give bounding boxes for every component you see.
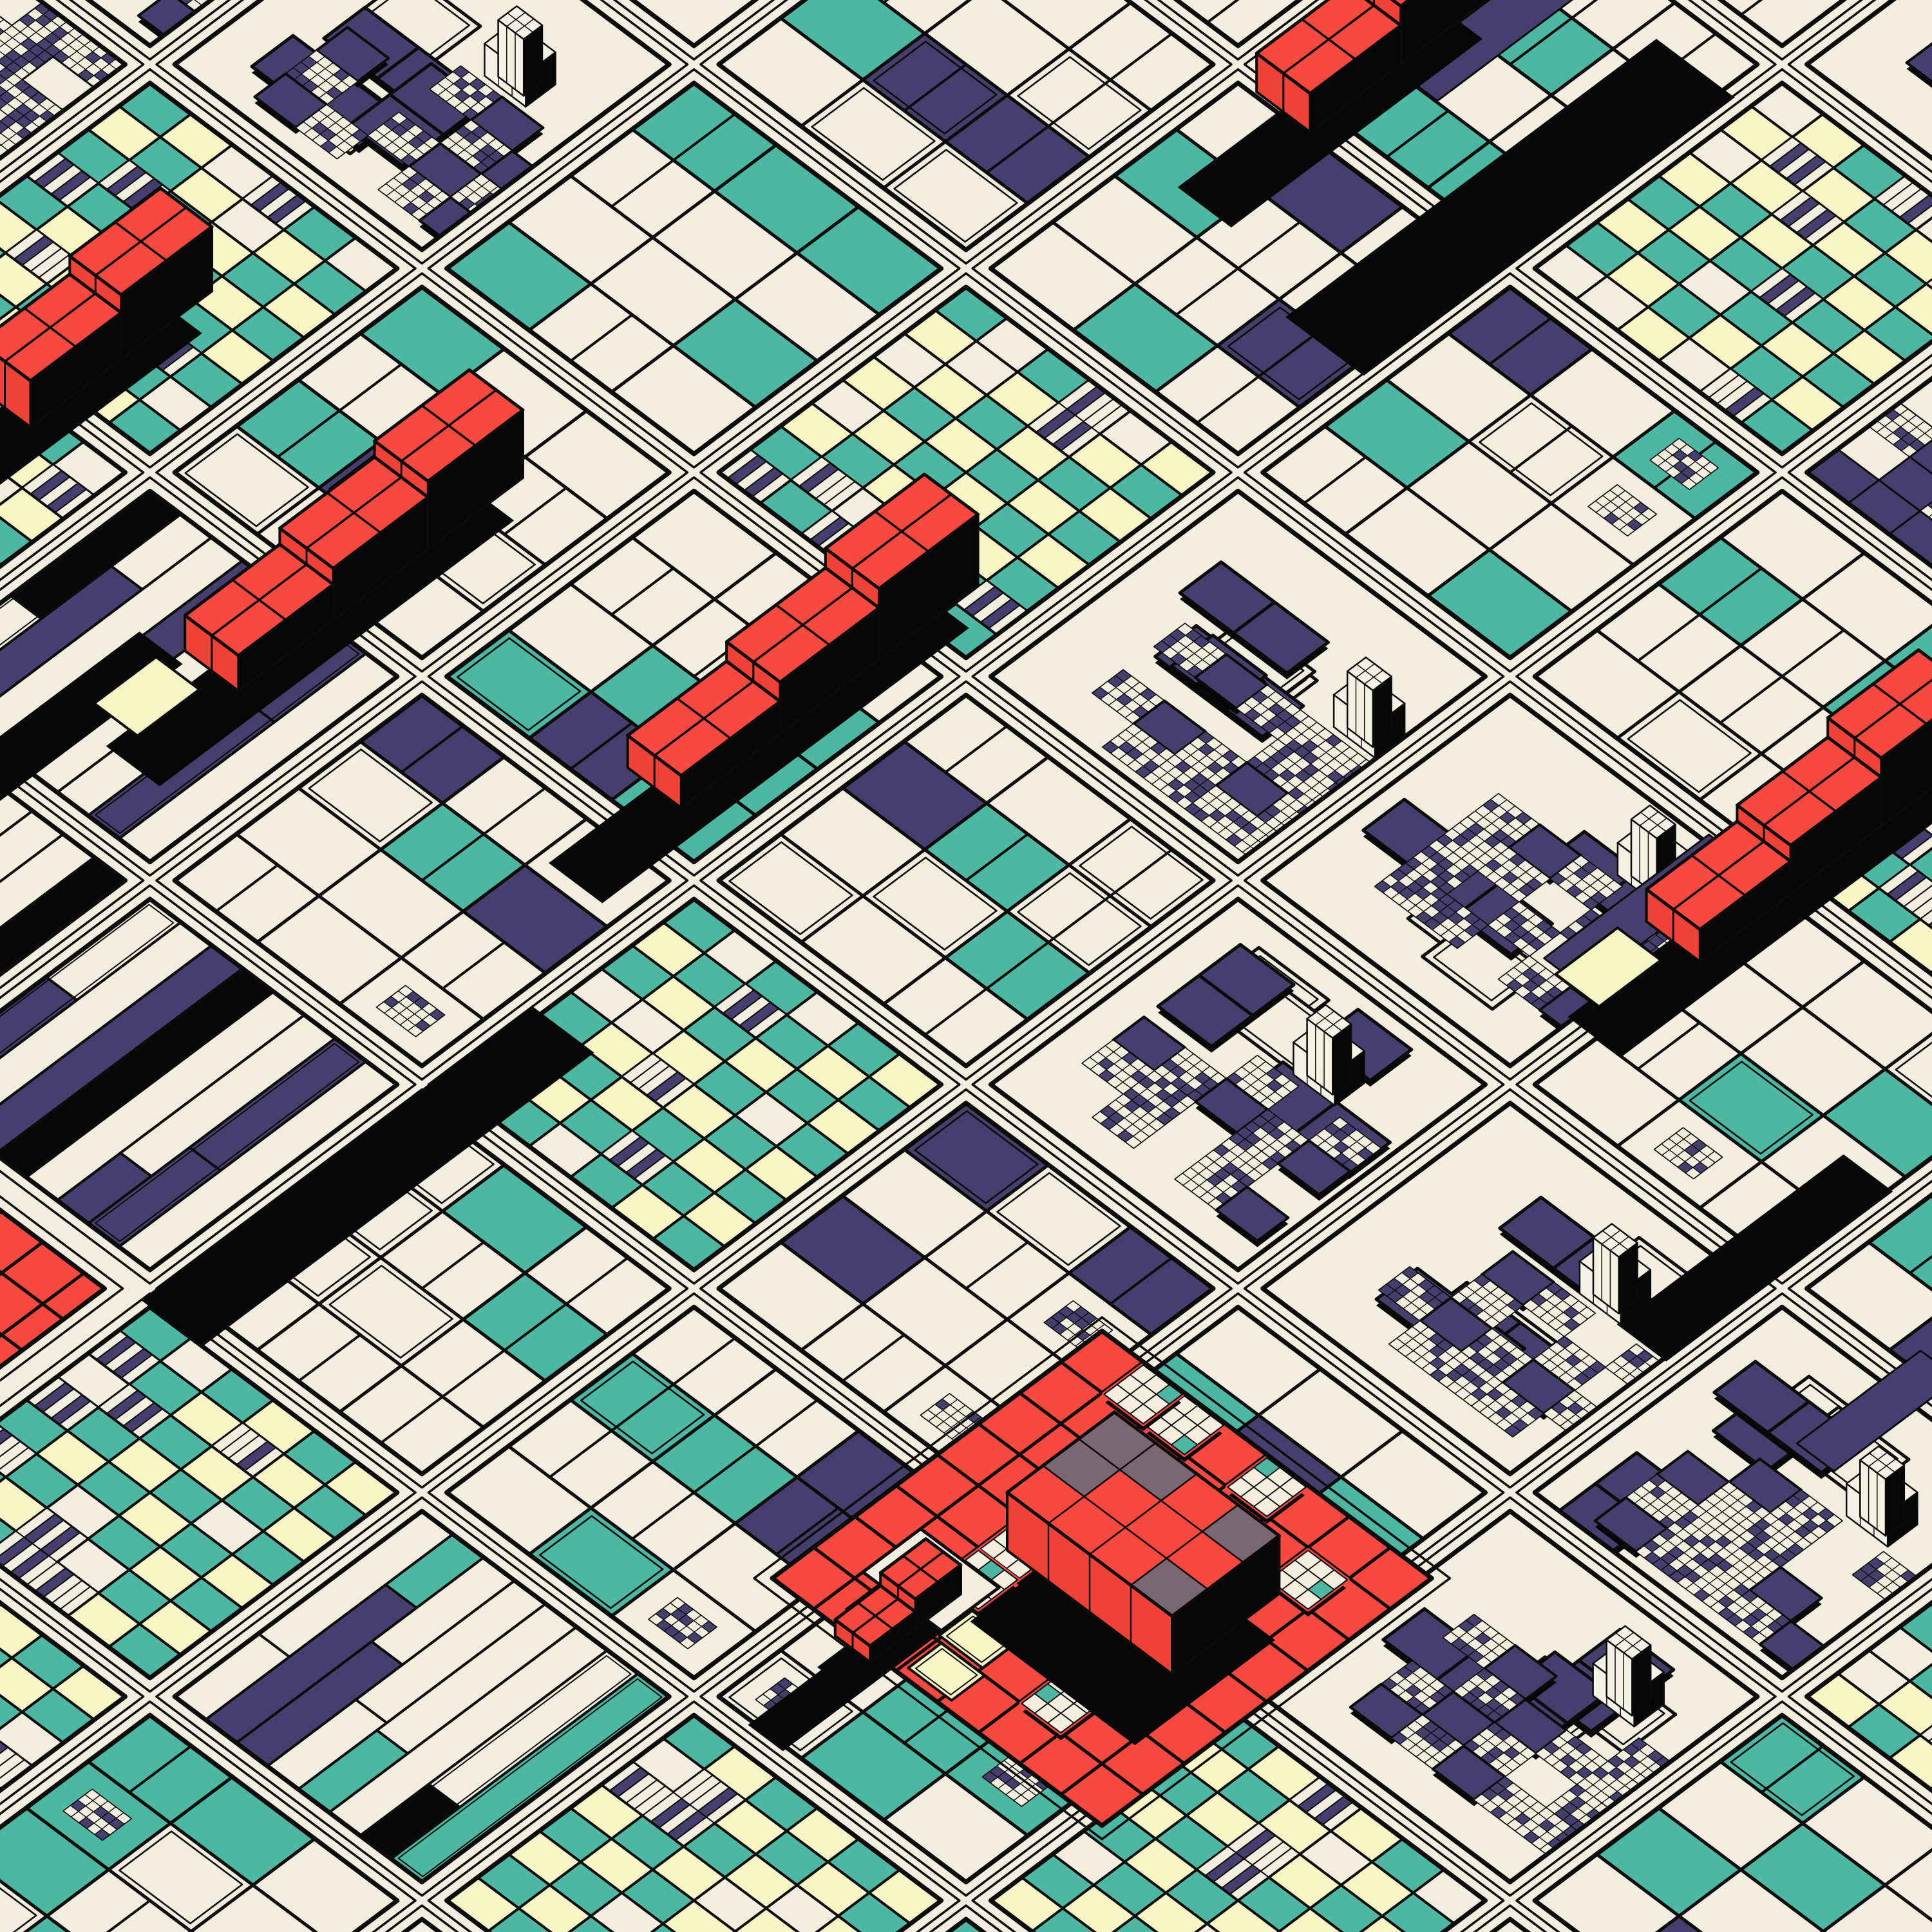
isometric-city-scene	[0, 0, 1932, 1932]
artwork-canvas	[0, 0, 1932, 1932]
